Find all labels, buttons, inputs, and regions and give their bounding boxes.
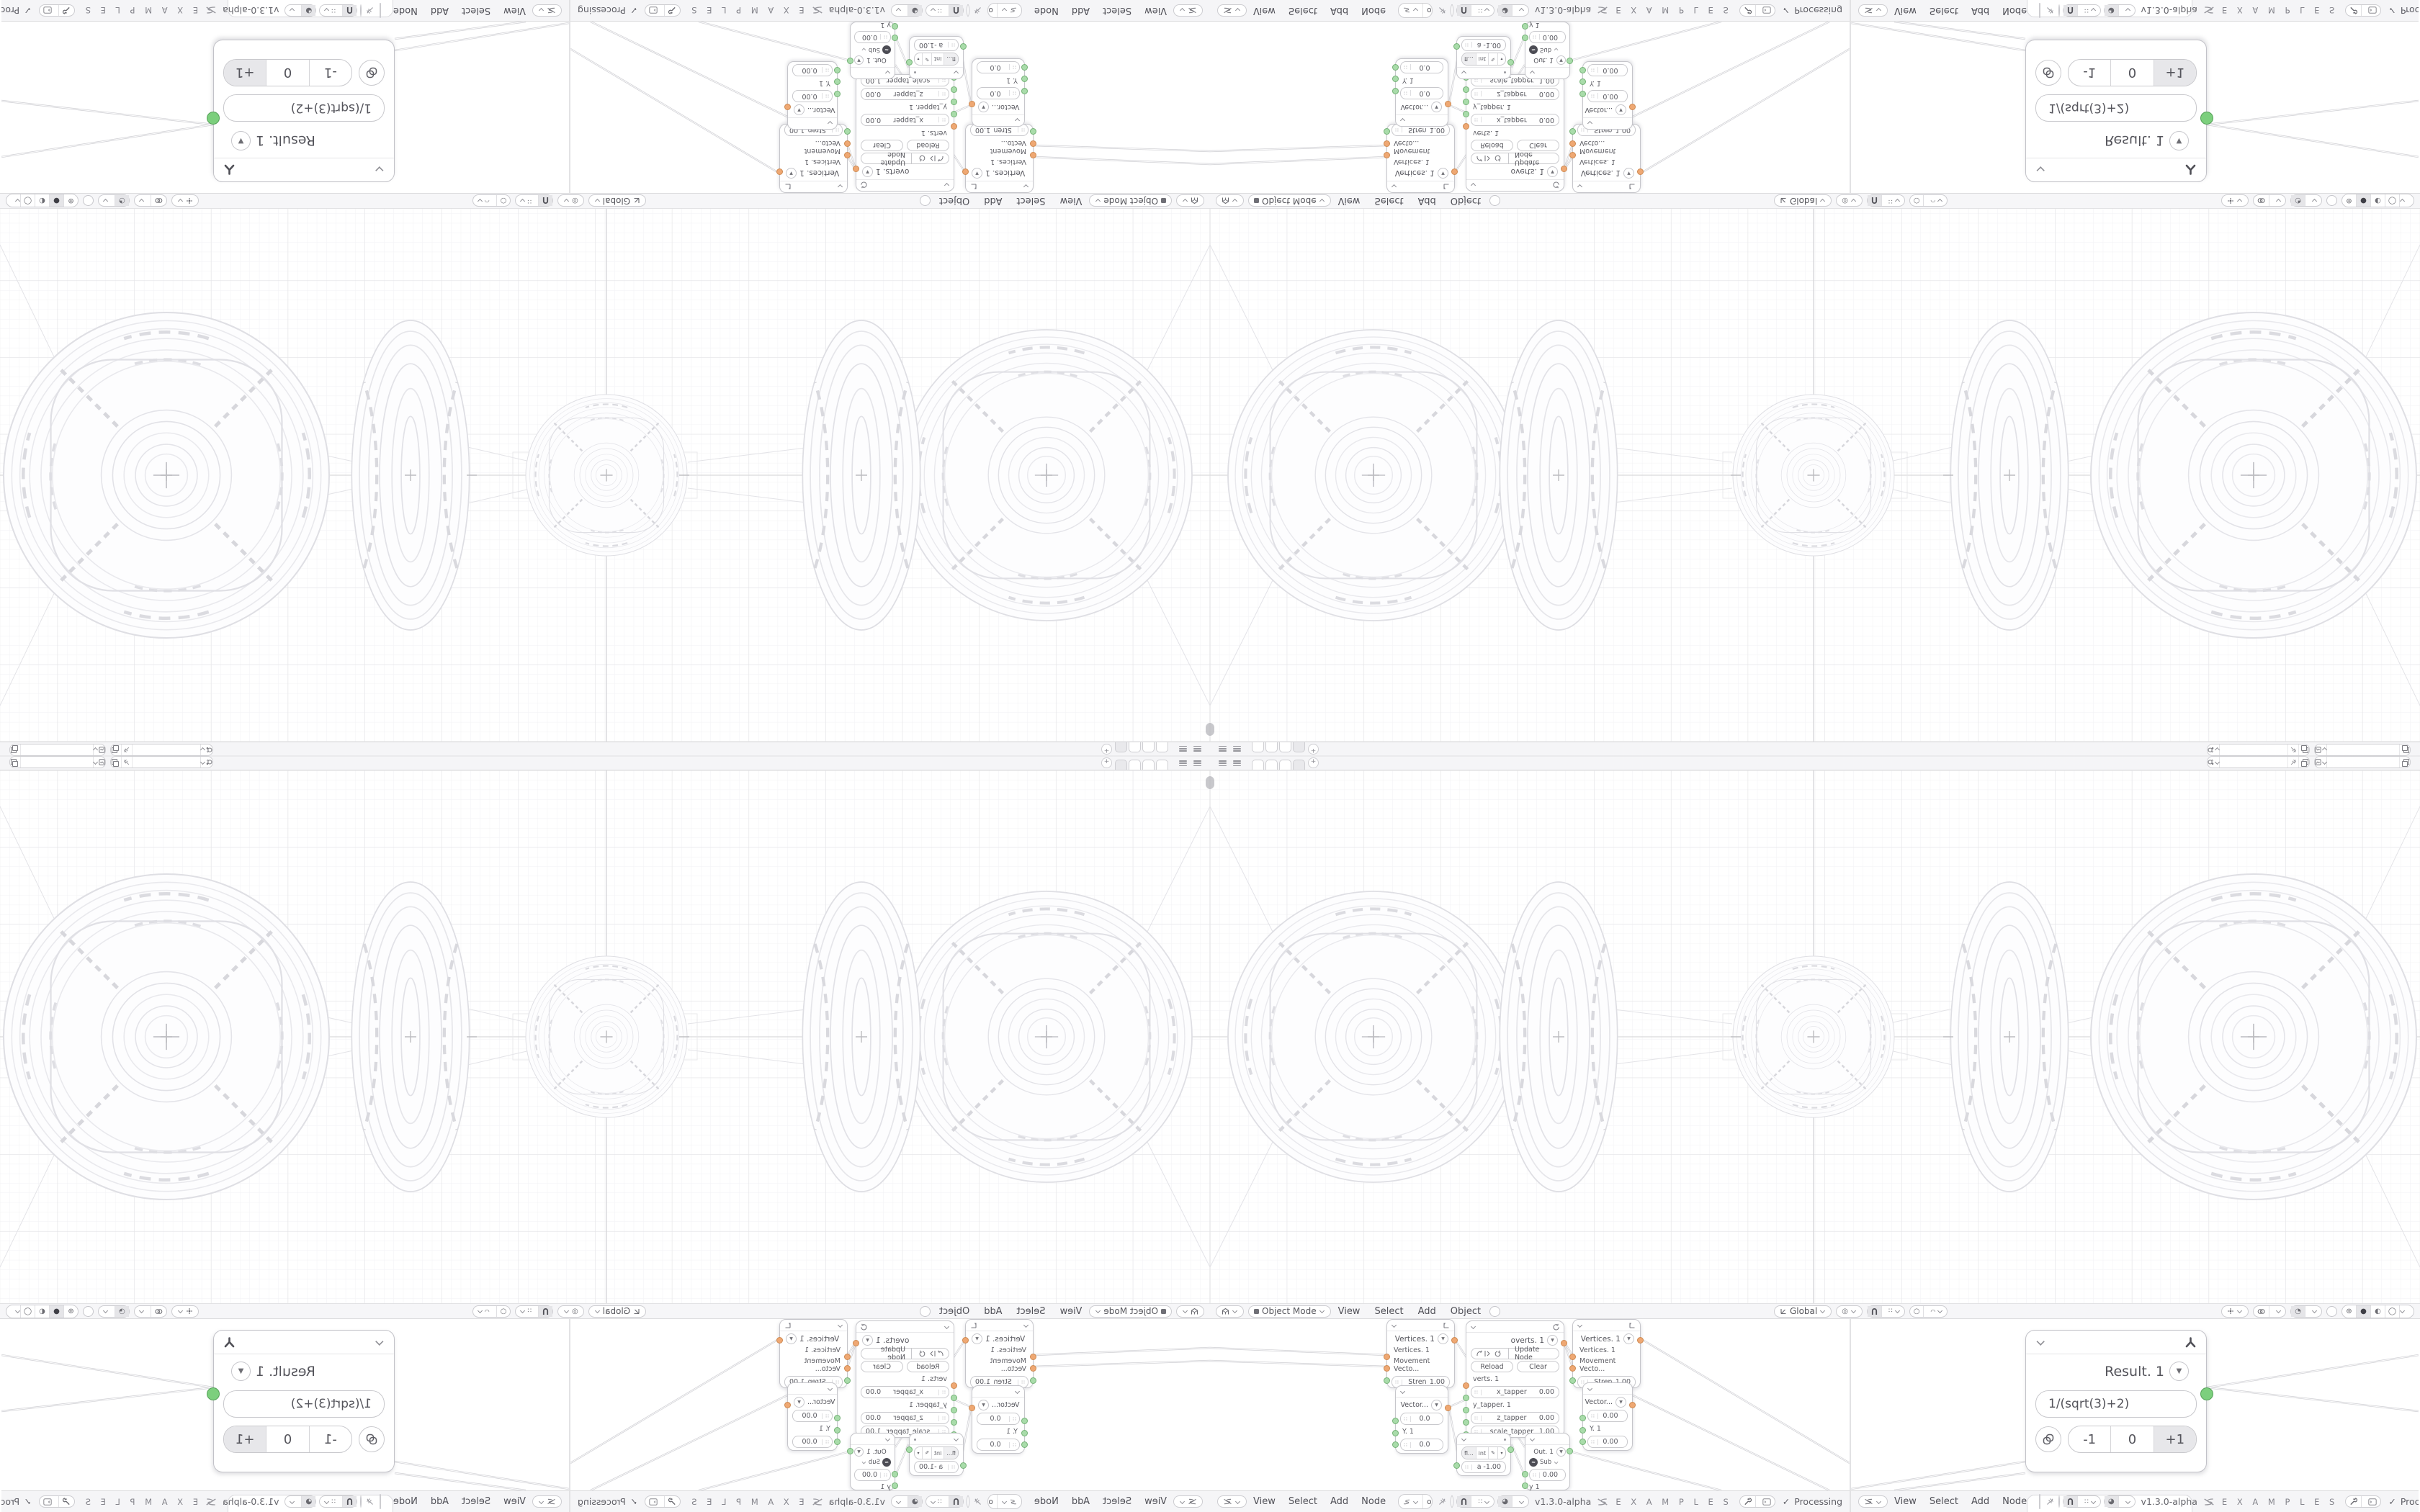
op-label[interactable]: Sub bbox=[869, 1459, 880, 1466]
check-icon[interactable]: ✓ bbox=[2388, 5, 2396, 16]
socket-out-green[interactable] bbox=[906, 59, 913, 66]
socket-in-green[interactable] bbox=[1522, 1471, 1528, 1477]
collapse-icon[interactable] bbox=[1461, 70, 1467, 76]
snap-controls[interactable]: ∷ bbox=[319, 4, 357, 17]
pin-icon[interactable] bbox=[2046, 1498, 2054, 1506]
pin-icon[interactable] bbox=[121, 744, 132, 755]
node-vector-2[interactable]: Vector...▼ ∷0.00 Y. 1 ∷0.00 bbox=[1582, 61, 1633, 130]
socket-in-green[interactable] bbox=[1453, 43, 1460, 50]
dropdown-icon[interactable]: ▼ bbox=[978, 1400, 989, 1410]
stren-value[interactable]: 1.00 bbox=[1430, 126, 1449, 134]
node-vector[interactable]: Vector...▼ ∷0.0 Y. 1 ∷0.0 bbox=[1395, 58, 1448, 127]
number-mode-segment[interactable]: fl... int ✎ ▾ bbox=[914, 53, 959, 66]
new-copy-icon[interactable] bbox=[111, 757, 121, 768]
workspace-tab-active[interactable] bbox=[1293, 742, 1305, 752]
overlay-dropdown[interactable] bbox=[2122, 5, 2135, 16]
editor-type-button[interactable] bbox=[532, 1495, 562, 1508]
proportional-edit-controls[interactable]: ○ ◠ bbox=[1909, 1305, 1948, 1318]
dropdown-icon[interactable]: ▼ bbox=[1615, 104, 1626, 115]
stren-value[interactable]: 1.00 bbox=[971, 126, 990, 134]
dropdown-icon[interactable]: ▼ bbox=[2169, 131, 2189, 150]
socket-in-green[interactable] bbox=[1579, 1439, 1586, 1445]
collapsed-menu-button[interactable] bbox=[920, 1306, 931, 1317]
examples-menu[interactable]: E X A M P L E S bbox=[1615, 6, 1731, 16]
dropdown-icon[interactable]: ▼ bbox=[972, 1333, 982, 1344]
overlay-controls[interactable]: ◕ bbox=[1497, 1495, 1529, 1508]
socket-out-orange[interactable] bbox=[776, 1337, 783, 1344]
menu-view[interactable]: View bbox=[1894, 5, 1917, 16]
overlay-controls[interactable]: ◕ bbox=[1497, 4, 1529, 17]
viewport-3d[interactable] bbox=[0, 770, 1210, 1303]
workspace-tab-active[interactable] bbox=[1115, 760, 1127, 770]
overlay-dropdown[interactable] bbox=[285, 1496, 298, 1507]
menu-burger-icon[interactable] bbox=[1219, 746, 1227, 752]
socket-in-green[interactable] bbox=[1021, 88, 1028, 94]
socket-in-orange[interactable] bbox=[1569, 1354, 1576, 1360]
tool-circle-button[interactable] bbox=[2058, 4, 2060, 17]
socket-out-orange[interactable] bbox=[1451, 1337, 1458, 1344]
workspace-tab[interactable] bbox=[1129, 742, 1141, 752]
vector-x-value[interactable]: 0.0 bbox=[1419, 1415, 1434, 1423]
node-vector[interactable]: Vector...▼ ∷0.0 Y. 1 ∷0.0 bbox=[972, 1385, 1025, 1454]
formula-field[interactable]: 1/(sqrt(3)+2) bbox=[223, 1390, 385, 1418]
menu-view[interactable]: View bbox=[503, 1496, 526, 1507]
dropdown-icon[interactable]: ▼ bbox=[862, 166, 873, 177]
examples-menu[interactable]: E X A M P L E S bbox=[688, 6, 804, 16]
socket-in-green[interactable] bbox=[960, 43, 967, 50]
task-buttons[interactable] bbox=[1739, 1495, 1775, 1508]
vector-z-value[interactable]: 0.00 bbox=[797, 66, 817, 74]
pin-icon[interactable] bbox=[2288, 744, 2299, 755]
link-icon-button[interactable] bbox=[2035, 60, 2061, 86]
socket-in-orange[interactable] bbox=[1384, 140, 1390, 147]
dropdown-icon[interactable]: ▼ bbox=[1547, 166, 1558, 177]
browse-tree-icon[interactable] bbox=[997, 4, 1021, 17]
workspace-tab[interactable] bbox=[1279, 760, 1291, 770]
dropdown-icon[interactable]: ▼ bbox=[786, 1333, 797, 1344]
number-value[interactable]: -1.00 bbox=[1483, 1463, 1505, 1471]
shading-rendered-icon[interactable]: ◯ bbox=[20, 1305, 35, 1318]
collapse-icon[interactable] bbox=[944, 1324, 949, 1330]
check-icon[interactable]: ✓ bbox=[1783, 5, 1790, 16]
node-number[interactable]: fl... int ✎ ▾ ∷a-1.00 bbox=[909, 36, 964, 79]
socket-out-orange[interactable] bbox=[776, 168, 783, 175]
workspace-tab[interactable] bbox=[1265, 742, 1278, 752]
overlay-dropdown[interactable] bbox=[1515, 5, 1528, 16]
socket-in-green[interactable] bbox=[1384, 1377, 1390, 1384]
menu-object[interactable]: Object bbox=[1451, 1306, 1481, 1317]
wrench-icon[interactable] bbox=[58, 5, 74, 16]
mode-int[interactable]: int bbox=[1476, 1447, 1489, 1459]
z-tapper-value[interactable]: 0.00 bbox=[861, 1414, 881, 1422]
socket-in-green[interactable] bbox=[1463, 99, 1469, 105]
collapse-icon[interactable] bbox=[1471, 182, 1476, 188]
socket-out-green[interactable] bbox=[1507, 59, 1514, 66]
node-vector-2[interactable]: Vector...▼ ∷0.00 Y. 1 ∷0.00 bbox=[1582, 1382, 1633, 1451]
add-workspace-button[interactable]: + bbox=[1101, 744, 1112, 755]
overlay-controls[interactable]: ◕ bbox=[891, 4, 923, 17]
menu-view[interactable]: View bbox=[1894, 1496, 1917, 1507]
socket-in-orange[interactable] bbox=[1463, 123, 1469, 130]
socket-in-green[interactable] bbox=[951, 1395, 957, 1401]
editor-type-button[interactable] bbox=[1217, 4, 1247, 17]
examples-menu[interactable]: E X A M P L E S bbox=[1615, 1497, 1731, 1507]
socket-in-orange[interactable] bbox=[844, 140, 851, 147]
socket-out-orange[interactable] bbox=[1629, 1402, 1636, 1408]
shading-mode-buttons[interactable]: ⊕ ● ◐ ◯ bbox=[6, 1305, 79, 1318]
edit-icon[interactable]: ✎ bbox=[922, 53, 931, 65]
menu-node[interactable]: Node bbox=[2002, 5, 2027, 16]
dropdown-icon[interactable]: ▼ bbox=[794, 104, 805, 115]
socket-in-green[interactable] bbox=[951, 1407, 957, 1413]
socket-in-green[interactable] bbox=[1463, 1419, 1469, 1426]
menu-view[interactable]: View bbox=[1253, 1496, 1276, 1507]
z-tapper-value[interactable]: 0.00 bbox=[1539, 1414, 1559, 1422]
tool-circle-button[interactable] bbox=[2058, 1495, 2060, 1508]
menu-view[interactable]: View bbox=[1144, 5, 1167, 16]
workspace-tab[interactable] bbox=[1156, 742, 1168, 752]
socket-in-green[interactable] bbox=[1021, 1430, 1028, 1436]
collapse-icon[interactable] bbox=[1400, 117, 1406, 123]
menu-add[interactable]: Add bbox=[1072, 5, 1090, 16]
node-canvas-2[interactable]: Result. 1 ▼ 1/(sqrt(3)+2) -1 0 +1 bbox=[1, 22, 569, 193]
z-tapper-value[interactable]: 0.00 bbox=[1539, 90, 1559, 98]
dropdown-icon[interactable]: ▼ bbox=[978, 102, 989, 112]
scene-name-field[interactable] bbox=[132, 757, 200, 768]
node-vertices[interactable]: Vertices. 1▼ Vertices. 1 Movement Vecto.… bbox=[965, 124, 1034, 193]
vector-x-value[interactable]: 0.0 bbox=[1419, 89, 1434, 97]
node-canvas-2[interactable]: Result. 1 ▼ 1/(sqrt(3)+2) -1 0 +1 bbox=[1851, 1319, 2419, 1490]
viewport-3d[interactable] bbox=[0, 209, 1210, 742]
menu-select[interactable]: Select bbox=[1930, 1496, 1958, 1507]
socket-in-orange[interactable] bbox=[1384, 1365, 1390, 1372]
menu-add[interactable]: Add bbox=[1418, 1306, 1436, 1317]
node-canvas-1[interactable]: Vertices. 1▼ Vertices. 1 Movement Vecto.… bbox=[1210, 1319, 1850, 1490]
minus-one-button[interactable]: -1 bbox=[2069, 1426, 2111, 1452]
dropdown-icon[interactable]: ▼ bbox=[1623, 168, 1634, 179]
collapse-icon[interactable] bbox=[1587, 120, 1593, 126]
menu-node[interactable]: Node bbox=[1361, 5, 1386, 16]
view-layer-name-field[interactable] bbox=[2327, 744, 2400, 755]
node-vertices-2[interactable]: Vertices. 1▼ Vertices. 1 Movement Vecto.… bbox=[1572, 124, 1641, 193]
socket-in-green[interactable] bbox=[1384, 128, 1390, 135]
mode-dropdown[interactable]: Object Mode bbox=[1089, 195, 1172, 207]
dropdown-icon[interactable]: ▼ bbox=[862, 1335, 873, 1346]
menu-object[interactable]: Object bbox=[939, 196, 969, 207]
tool-circle-button[interactable] bbox=[360, 1495, 362, 1508]
check-icon[interactable]: ✓ bbox=[1783, 1496, 1790, 1507]
node-number[interactable]: fl... int ✎ ▾ ∷a-1.00 bbox=[909, 1433, 964, 1476]
dropdown-icon[interactable]: ▼ bbox=[1556, 1447, 1566, 1457]
node-vector[interactable]: Vector...▼ ∷0.0 Y. 1 ∷0.0 bbox=[1395, 1385, 1448, 1454]
menu-burger-icon-2[interactable] bbox=[1179, 746, 1187, 752]
tool-circle-button[interactable] bbox=[360, 4, 362, 17]
update-node-button[interactable]: Update Node bbox=[861, 1348, 912, 1359]
xray-dropdown[interactable] bbox=[99, 1306, 112, 1317]
tool-circle-button[interactable] bbox=[967, 4, 969, 17]
link-icon-button[interactable] bbox=[359, 1426, 385, 1452]
snap-controls[interactable]: ∷ bbox=[1867, 1305, 1905, 1318]
mode-float[interactable]: fl... bbox=[944, 53, 958, 65]
menu-add[interactable]: Add bbox=[984, 1306, 1002, 1317]
menu-burger-icon[interactable] bbox=[1193, 746, 1201, 752]
socket-in-green[interactable] bbox=[1021, 1441, 1028, 1448]
menu-burger-icon-2[interactable] bbox=[1179, 760, 1187, 766]
menu-add[interactable]: Add bbox=[431, 5, 449, 16]
view-layer-selector[interactable] bbox=[9, 756, 106, 768]
socket-in-green[interactable] bbox=[834, 1439, 841, 1445]
minus-one-button[interactable]: -1 bbox=[2069, 60, 2111, 86]
workspace-tab[interactable] bbox=[1156, 760, 1168, 770]
editor-type-button[interactable] bbox=[1176, 195, 1204, 207]
menu-burger-icon-2[interactable] bbox=[1233, 760, 1241, 766]
dropdown-icon[interactable]: ▼ bbox=[231, 131, 251, 150]
menu-object[interactable]: Object bbox=[939, 1306, 969, 1317]
mode-dropdown[interactable]: Object Mode bbox=[1248, 1305, 1331, 1318]
vector-x-value[interactable]: 0.0 bbox=[985, 1415, 1000, 1423]
node-script[interactable]: overts. 1▼ Update Node Reload Clear vert… bbox=[856, 75, 954, 192]
socket-in-orange[interactable] bbox=[1569, 152, 1576, 158]
pin-icon[interactable] bbox=[366, 1498, 374, 1506]
transform-orientation-dropdown[interactable]: Global bbox=[588, 1305, 646, 1318]
menu-add[interactable]: Add bbox=[1971, 5, 1989, 16]
menu-select[interactable]: Select bbox=[1016, 196, 1045, 207]
socket-in-green[interactable] bbox=[951, 86, 957, 93]
menu-select[interactable]: Select bbox=[1930, 5, 1958, 16]
wrench-icon[interactable] bbox=[1740, 5, 1756, 16]
snap-controls[interactable]: ∷ bbox=[2063, 1495, 2101, 1508]
pivot-point-dropdown[interactable]: ◎ bbox=[557, 195, 584, 207]
socket-in-green[interactable] bbox=[1579, 1415, 1586, 1421]
menu-select[interactable]: Select bbox=[1374, 1306, 1403, 1317]
editor-type-button[interactable] bbox=[1858, 1495, 1888, 1508]
snap-controls[interactable]: ∷ bbox=[926, 4, 964, 17]
pin-icon[interactable] bbox=[366, 6, 374, 14]
examples-menu[interactable]: E X A M P L E S bbox=[82, 1497, 198, 1507]
node-result[interactable]: Result. 1 ▼ 1/(sqrt(3)+2) -1 0 +1 bbox=[2025, 1330, 2207, 1472]
node-vector[interactable]: Vector...▼ ∷0.0 Y. 1 ∷0.0 bbox=[972, 58, 1025, 127]
node-vertices-2[interactable]: Vertices. 1▼ Vertices. 1 Movement Vecto.… bbox=[779, 1319, 848, 1388]
socket-in-green[interactable] bbox=[1030, 128, 1036, 135]
transform-orientation-dropdown[interactable]: Global bbox=[588, 195, 646, 207]
node-editor-area-1[interactable]: Vertices. 1▼ Vertices. 1 Movement Vecto.… bbox=[1210, 1319, 1851, 1512]
node-editor-area-1[interactable]: Vertices. 1▼ Vertices. 1 Movement Vecto.… bbox=[569, 0, 1210, 193]
node-script[interactable]: overts. 1▼ Update Node Reload Clear vert… bbox=[856, 1320, 954, 1437]
snap-controls[interactable]: ∷ bbox=[2063, 4, 2101, 17]
collapsed-menu-button[interactable] bbox=[1489, 196, 1500, 207]
editor-type-button[interactable] bbox=[1216, 195, 1244, 207]
browse-tree-icon[interactable] bbox=[2040, 1495, 2040, 1508]
xray-controls[interactable]: ◔ bbox=[98, 1305, 130, 1318]
show-gizmo-dropdown[interactable] bbox=[2221, 195, 2249, 207]
tree-name[interactable]: оΔо2S:✚ƆC✚ЯRоЯR✚ƆC✚:S2оΔо bbox=[1423, 4, 1433, 17]
xray-toggle[interactable] bbox=[83, 196, 94, 207]
transform-orientation-dropdown[interactable]: Global bbox=[1774, 195, 1832, 207]
collapse-icon[interactable] bbox=[953, 70, 959, 76]
socket-in-green[interactable] bbox=[1021, 64, 1028, 71]
socket-in-green[interactable] bbox=[1030, 1377, 1036, 1384]
browse-tree-icon[interactable] bbox=[380, 1495, 380, 1508]
shading-solid-icon[interactable]: ● bbox=[49, 195, 63, 207]
menu-view[interactable]: View bbox=[1338, 196, 1361, 207]
menu-burger-icon[interactable] bbox=[1219, 760, 1227, 766]
result-output-socket[interactable] bbox=[2200, 112, 2213, 125]
shading-dropdown[interactable] bbox=[6, 195, 20, 207]
check-icon[interactable]: ✓ bbox=[630, 5, 637, 16]
out-value[interactable]: 0.00 bbox=[1543, 33, 1562, 41]
socket-out-green[interactable] bbox=[1507, 1446, 1514, 1453]
edit-icon[interactable]: ✎ bbox=[922, 1447, 931, 1459]
op-label[interactable]: Sub bbox=[1540, 1459, 1551, 1466]
dropdown-icon[interactable]: ▼ bbox=[794, 1397, 805, 1408]
xray-dropdown[interactable] bbox=[2308, 1306, 2321, 1317]
socket-in-green[interactable] bbox=[1463, 111, 1469, 117]
workspace-tab[interactable] bbox=[1252, 760, 1264, 770]
result-output-socket[interactable] bbox=[207, 1387, 220, 1400]
shading-solid-icon[interactable]: ● bbox=[49, 1305, 63, 1318]
view-layer-selector[interactable] bbox=[2314, 744, 2411, 756]
editor-type-button[interactable] bbox=[1217, 1495, 1247, 1508]
menu-object[interactable]: Object bbox=[1451, 196, 1481, 207]
minus-one-button[interactable]: -1 bbox=[309, 1426, 351, 1452]
zero-button[interactable]: 0 bbox=[266, 1426, 308, 1452]
result-output-socket[interactable] bbox=[2200, 1387, 2213, 1400]
node-result[interactable]: Result. 1 ▼ 1/(sqrt(3)+2) -1 0 +1 bbox=[2025, 40, 2207, 182]
wrench-icon[interactable] bbox=[664, 1496, 680, 1507]
collapse-icon[interactable] bbox=[884, 1436, 890, 1442]
dropdown-icon[interactable]: ▼ bbox=[1438, 1333, 1448, 1344]
collapsed-menu-button[interactable] bbox=[1489, 1306, 1500, 1317]
mode-int[interactable]: int bbox=[931, 53, 944, 65]
tree-name[interactable]: оΔо2S:✚ƆC✚ЯRоЯR✚ƆC✚:S2оΔо bbox=[987, 1495, 997, 1508]
edit-icon[interactable]: ✎ bbox=[1489, 53, 1498, 65]
tree-name[interactable]: оΔо2S:✚ƆC✚ЯRоЯR✚ƆC✚:S2оΔо bbox=[1423, 1495, 1433, 1508]
viewport-3d[interactable] bbox=[1210, 209, 2420, 742]
node-canvas-1[interactable]: Vertices. 1▼ Vertices. 1 Movement Vecto.… bbox=[570, 22, 1210, 193]
number-value[interactable]: -1.00 bbox=[915, 41, 937, 49]
socket-out-orange[interactable] bbox=[853, 166, 859, 172]
socket-in-orange[interactable] bbox=[1569, 140, 1576, 147]
socket-out-green[interactable] bbox=[906, 1446, 913, 1453]
view-layer-name-field[interactable] bbox=[20, 744, 93, 755]
overlay-controls[interactable]: ◕ bbox=[284, 4, 316, 17]
menu-view[interactable]: View bbox=[1253, 5, 1276, 16]
socket-in-green[interactable] bbox=[951, 1419, 957, 1426]
console-icon[interactable] bbox=[645, 1496, 661, 1507]
collapse-icon[interactable] bbox=[1530, 70, 1536, 76]
socket-out-orange[interactable] bbox=[784, 104, 791, 110]
add-workspace-button[interactable]: + bbox=[1101, 757, 1112, 768]
formula-field[interactable]: 1/(sqrt(3)+2) bbox=[2035, 94, 2197, 122]
zero-button[interactable]: 0 bbox=[2111, 1426, 2154, 1452]
collapse-icon[interactable] bbox=[1023, 1323, 1028, 1328]
overlay-controls[interactable]: ◕ bbox=[891, 1495, 923, 1508]
node-editor-area-2[interactable]: Result. 1 ▼ 1/(sqrt(3)+2) -1 0 +1 bbox=[1, 1319, 569, 1512]
collapse-icon[interactable] bbox=[884, 70, 890, 76]
socket-out-orange[interactable] bbox=[969, 1405, 975, 1411]
editor-type-button[interactable] bbox=[532, 4, 562, 17]
browse-tree-icon[interactable] bbox=[1399, 1495, 1423, 1508]
update-node-button[interactable]: Update Node bbox=[1508, 1348, 1559, 1359]
shading-mode-buttons[interactable]: ⊕ ● ◐ ◯ bbox=[6, 194, 79, 208]
browse-tree-icon[interactable] bbox=[2040, 4, 2040, 17]
show-gizmo-dropdown[interactable] bbox=[171, 195, 199, 207]
node-tree-selector[interactable]: оΔо2S:✚ƆC✚ЯRоЯR✚ƆC✚:S2оΔо × bbox=[1398, 3, 1433, 18]
mode-float[interactable]: fl... bbox=[1462, 53, 1476, 65]
clear-button[interactable]: Clear bbox=[1517, 140, 1559, 151]
update-node-button[interactable]: Update Node bbox=[1508, 153, 1559, 164]
overlays-controls[interactable] bbox=[134, 195, 167, 207]
menu-add[interactable]: Add bbox=[1330, 5, 1348, 16]
link-icon-button[interactable] bbox=[359, 60, 385, 86]
overlays-dropdown[interactable] bbox=[2272, 1306, 2285, 1317]
examples-menu[interactable]: E X A M P L E S bbox=[2222, 1497, 2338, 1507]
workspace-tab[interactable] bbox=[1252, 742, 1264, 752]
collapse-icon[interactable] bbox=[827, 1386, 833, 1392]
dropdown-icon[interactable]: ▼ bbox=[854, 1447, 864, 1457]
region-handle[interactable] bbox=[1206, 776, 1210, 789]
socket-in-green[interactable] bbox=[892, 1471, 898, 1477]
workspace-tab[interactable] bbox=[1129, 760, 1141, 770]
task-buttons[interactable] bbox=[1739, 4, 1775, 17]
xray-dropdown[interactable] bbox=[2308, 196, 2321, 207]
socket-out-orange[interactable] bbox=[1629, 104, 1636, 110]
node-out[interactable]: Out. 1▼ ≈ Sub ∷0.00 y 1 bbox=[1525, 1433, 1570, 1490]
script-icon-buttons[interactable] bbox=[912, 153, 949, 164]
task-buttons[interactable] bbox=[2345, 4, 2381, 17]
mode-int[interactable]: int bbox=[1476, 53, 1489, 65]
overlay-dropdown[interactable] bbox=[2122, 1496, 2135, 1507]
menu-add[interactable]: Add bbox=[984, 196, 1002, 207]
reload-button[interactable]: Reload bbox=[907, 1361, 949, 1372]
task-buttons[interactable] bbox=[645, 4, 681, 17]
snap-controls[interactable]: ∷ bbox=[1456, 1495, 1494, 1508]
shading-wireframe-icon[interactable]: ⊕ bbox=[63, 195, 78, 207]
socket-in-green[interactable] bbox=[1579, 1427, 1586, 1434]
shading-dropdown[interactable] bbox=[2400, 1305, 2414, 1318]
socket-out-orange[interactable] bbox=[962, 1337, 969, 1344]
new-copy-icon[interactable] bbox=[2299, 757, 2309, 768]
socket-out-orange[interactable] bbox=[1637, 1337, 1644, 1344]
menu-add[interactable]: Add bbox=[1072, 1496, 1090, 1507]
menu-select[interactable]: Select bbox=[1289, 1496, 1317, 1507]
workspace-tab-active[interactable] bbox=[1115, 742, 1127, 752]
socket-out-green[interactable] bbox=[847, 58, 853, 64]
overlays-dropdown[interactable] bbox=[135, 196, 148, 207]
shading-rendered-icon[interactable]: ◯ bbox=[2385, 195, 2400, 207]
reload-button[interactable]: Reload bbox=[1471, 140, 1513, 151]
menu-select[interactable]: Select bbox=[1103, 5, 1131, 16]
socket-in-green[interactable] bbox=[1392, 1441, 1399, 1448]
socket-in-green[interactable] bbox=[834, 91, 841, 97]
menu-select[interactable]: Select bbox=[1103, 1496, 1131, 1507]
node-tree-selector[interactable]: оΔо2S:✚ƆC✚ЯRоЯR✚ƆC✚:S2оΔо × bbox=[987, 3, 1022, 18]
socket-in-orange[interactable] bbox=[1463, 1382, 1469, 1389]
task-buttons[interactable] bbox=[39, 1495, 75, 1508]
clear-button[interactable]: Clear bbox=[1517, 1361, 1559, 1372]
number-mode-segment[interactable]: fl... int ✎ ▾ bbox=[914, 1446, 959, 1459]
socket-in-orange[interactable] bbox=[1384, 152, 1390, 158]
shading-mode-buttons[interactable]: ⊕ ● ◐ ◯ bbox=[2341, 1305, 2414, 1318]
overlay-dropdown[interactable] bbox=[1515, 1496, 1528, 1507]
wrench-icon[interactable] bbox=[2346, 1496, 2362, 1507]
collapse-icon[interactable] bbox=[1587, 1386, 1593, 1392]
proportional-edit-controls[interactable]: ○ ◠ bbox=[472, 195, 511, 207]
console-icon[interactable] bbox=[1759, 5, 1775, 16]
socket-out-orange[interactable] bbox=[969, 101, 975, 107]
minus-one-button[interactable]: -1 bbox=[309, 60, 351, 86]
reload-button[interactable]: Reload bbox=[907, 140, 949, 151]
